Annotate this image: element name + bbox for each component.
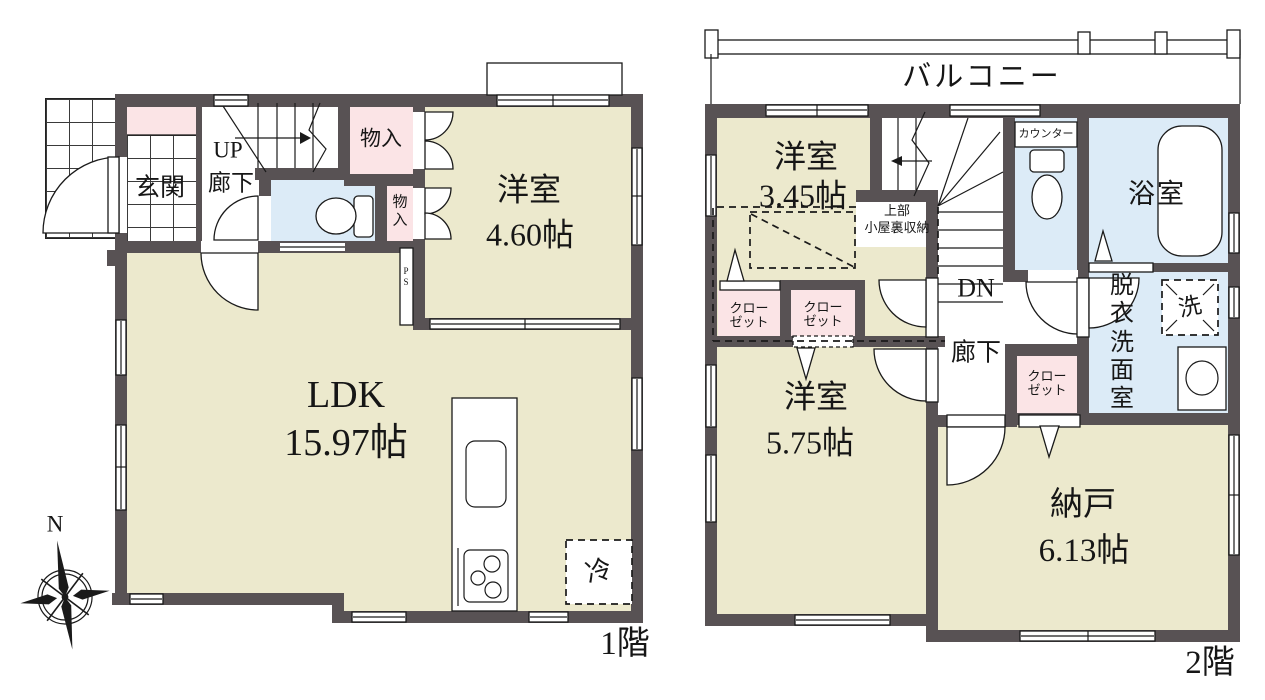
label-western-room-1f-size: 4.60帖 (486, 217, 574, 252)
label-counter: カウンター (1019, 128, 1074, 140)
label-western-room-2f: 洋室 (784, 379, 848, 414)
toilet-icon (316, 196, 373, 237)
kitchen-counter-icon (452, 398, 517, 611)
label-storage-upper: 物入 (360, 127, 402, 150)
label-ldk: LDK (307, 375, 385, 417)
label-western-room-2f-size: 5.75帖 (766, 425, 854, 460)
label-dressing-room: 脱衣洗面室 (1109, 272, 1134, 414)
label-stairs-up: UP (213, 137, 242, 162)
label-stairs-down: DN (957, 275, 995, 304)
label-bathroom: 浴室 (1128, 180, 1186, 210)
label-attic-line2: 小屋裏収納 (864, 221, 929, 235)
stairs-arrow-icon (300, 132, 311, 144)
label-pipe-space: PS (401, 266, 410, 289)
label-storage-room-size: 6.13帖 (1039, 533, 1130, 569)
floor2-plan (705, 30, 1240, 642)
label-western-room-small-size: 3.45帖 (759, 178, 847, 213)
washbasin-icon (1178, 347, 1226, 410)
label-closet2: クロー ゼット (803, 301, 842, 330)
stairs2-arrow-icon (891, 156, 902, 166)
label-entrance: 玄関 (135, 174, 185, 202)
toilet2-door-icon (1026, 282, 1078, 334)
floor1-plan (13, 63, 643, 656)
label-storage-room: 納戸 (1050, 487, 1116, 523)
label-hallway-2f: 廊下 (951, 339, 1001, 367)
floorplan-page: 玄関 UP 廊下 物入 物入 洋室 4.60帖 LDK 15.97帖 冷 PS … (0, 0, 1265, 700)
floorplan-drawing (0, 0, 1265, 700)
toilet2-icon (1030, 150, 1064, 219)
entrance-door-icon (43, 157, 119, 233)
label-closet1: クロー ゼット (729, 302, 768, 331)
label-balcony: バルコニー (902, 62, 1061, 94)
label-compass-north: N (47, 511, 64, 536)
label-floor2: 2階 (1185, 645, 1235, 681)
label-ldk-size: 15.97帖 (284, 423, 408, 465)
label-western-room-1f: 洋室 (497, 172, 561, 207)
toilet1-door-icon (214, 196, 258, 240)
label-attic-line1: 上部 (884, 204, 910, 218)
label-floor1: 1階 (600, 626, 650, 662)
label-hallway-1f: 廊下 (208, 170, 254, 195)
label-closet3: クロー ゼット (1027, 370, 1066, 399)
label-storage-lower: 物入 (392, 194, 408, 229)
label-western-room-small: 洋室 (774, 139, 838, 174)
label-washer: 洗 (1176, 292, 1204, 322)
